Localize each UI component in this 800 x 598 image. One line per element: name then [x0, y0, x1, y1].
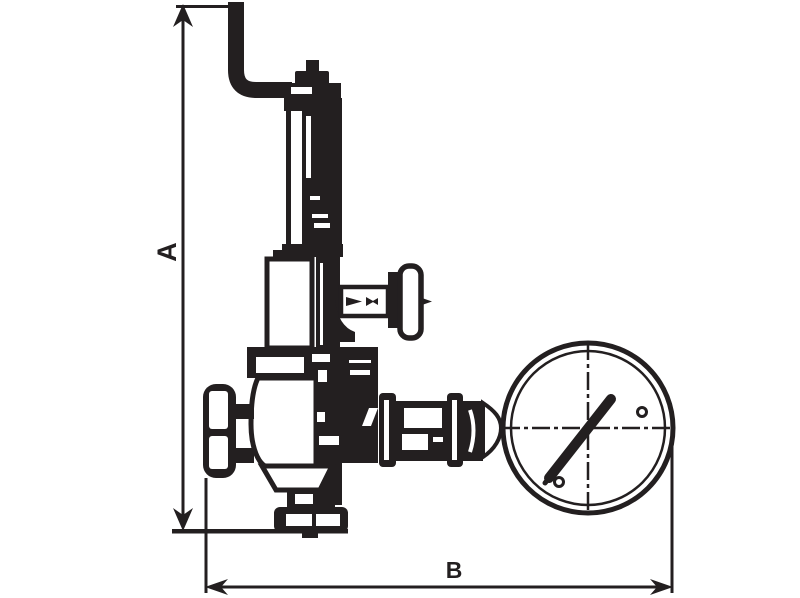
spring-housing: [282, 83, 343, 257]
dimension-b-label: B: [446, 557, 463, 583]
gauge-dial-dot-upper: [638, 408, 647, 417]
extension-line-right: [671, 432, 674, 593]
adjusting-cap: [295, 60, 329, 85]
technical-drawing-canvas: A B: [0, 0, 800, 598]
side-adjustment-knob: [341, 266, 432, 338]
valve-drawing: A B: [0, 0, 800, 598]
inlet-handwheel: [203, 384, 254, 478]
extension-line-left: [205, 478, 208, 593]
knob-end-tick: [422, 298, 432, 305]
gauge-stem: [483, 403, 501, 457]
gauge-dial-dot-lower: [555, 478, 564, 487]
dimension-a-line: [182, 12, 185, 524]
dimension-b-line: [210, 586, 668, 589]
outlet-fittings: [379, 393, 501, 467]
dimension-a-label: A: [152, 242, 182, 262]
pressure-gauge: [502, 342, 674, 514]
inlet-elbow-pipe: [236, 2, 292, 90]
housing-base-ring: [282, 244, 343, 257]
